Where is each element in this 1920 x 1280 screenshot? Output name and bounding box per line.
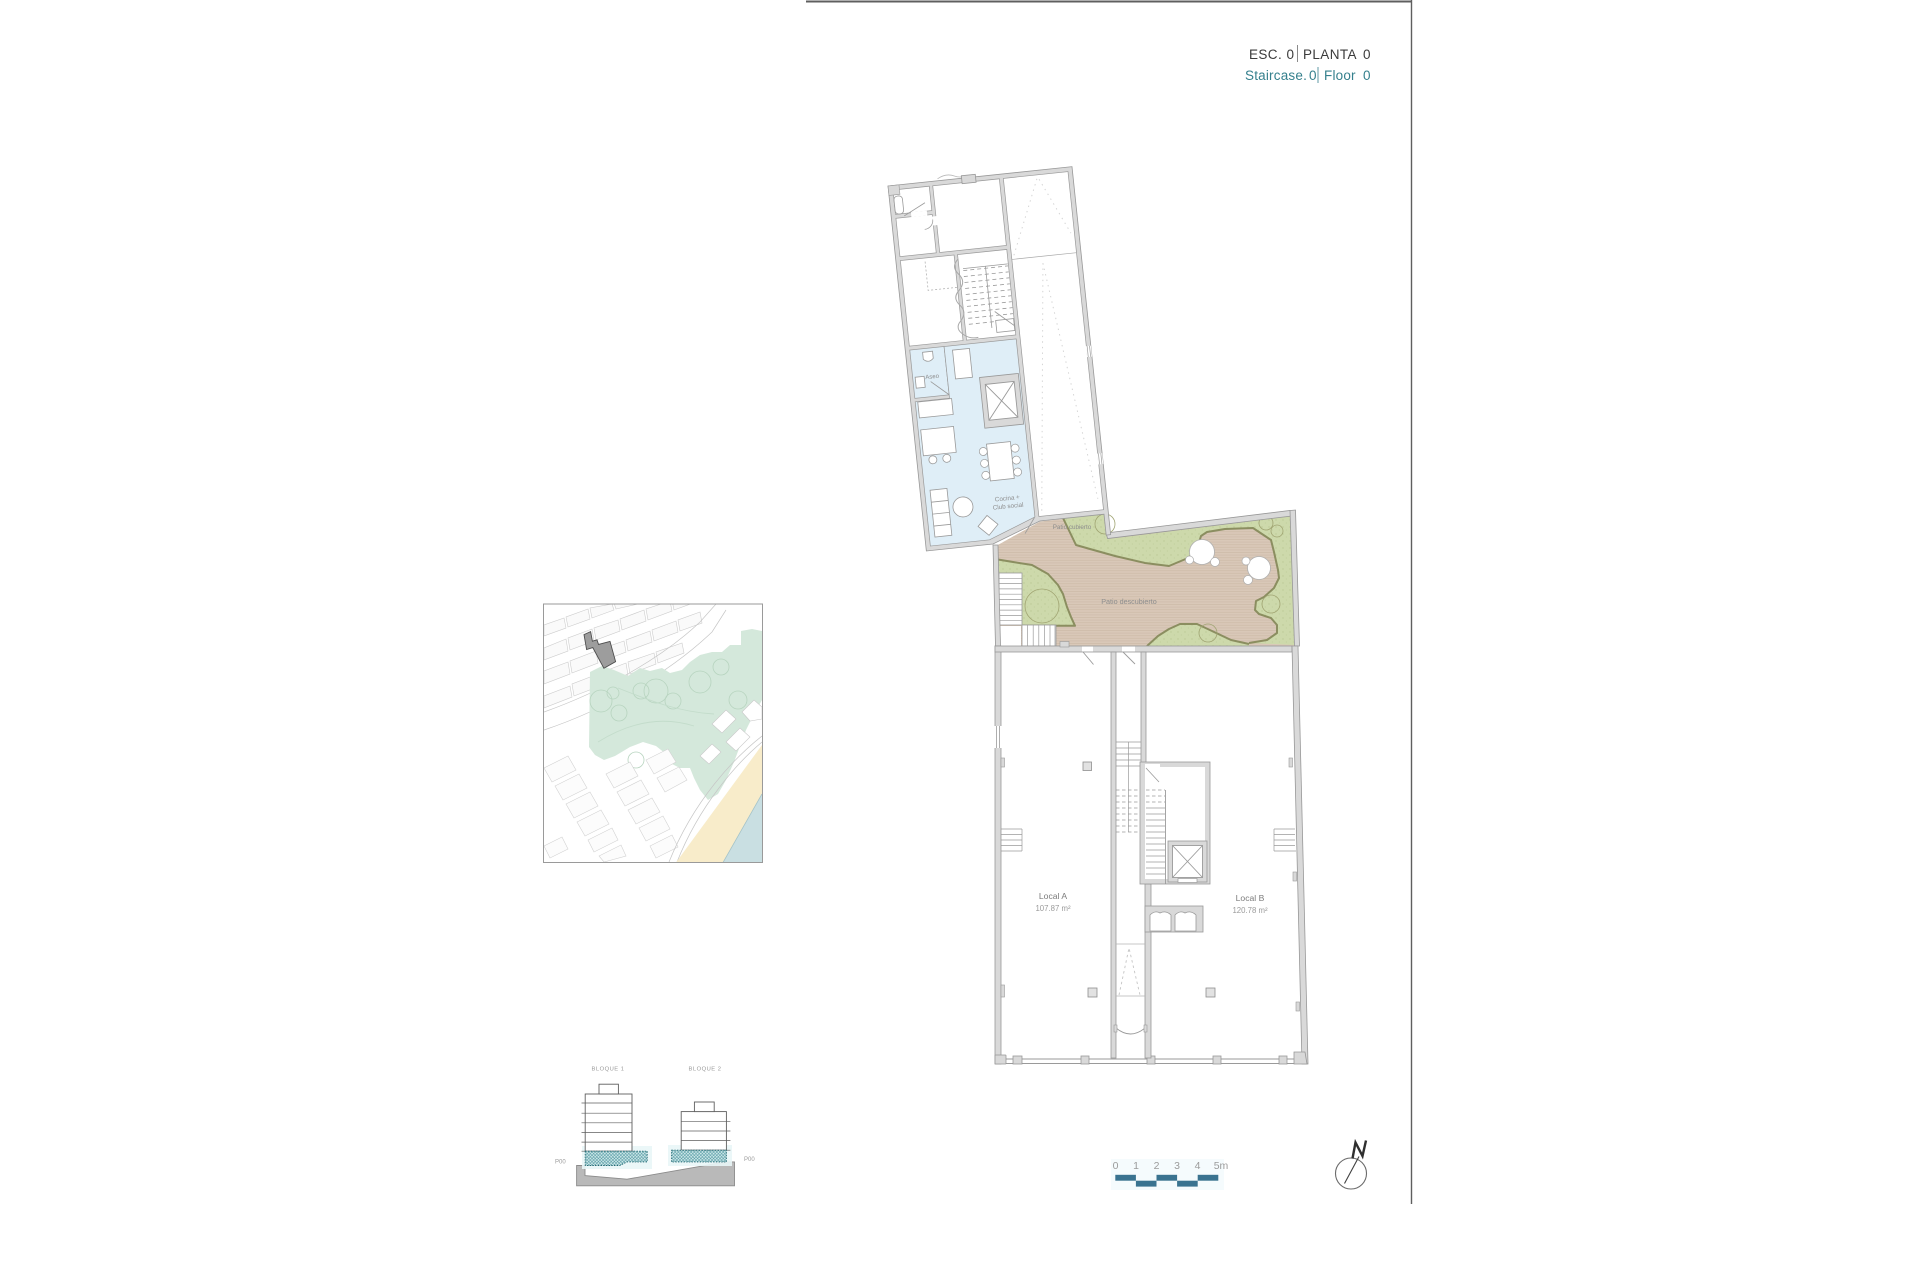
svg-text:0: 0 xyxy=(1363,68,1371,83)
svg-text:Floor: Floor xyxy=(1324,68,1356,83)
svg-text:1: 1 xyxy=(1133,1160,1139,1172)
svg-text:BLOQUE 1: BLOQUE 1 xyxy=(592,1067,625,1073)
svg-text:4: 4 xyxy=(1195,1160,1201,1172)
svg-text:3: 3 xyxy=(1174,1160,1180,1172)
svg-text:ESC.: ESC. xyxy=(1249,47,1282,62)
svg-text:PLANTA: PLANTA xyxy=(1303,47,1357,62)
svg-text:P00: P00 xyxy=(744,1157,755,1163)
svg-text:P00: P00 xyxy=(555,1160,566,1166)
svg-text:Staircase.: Staircase. xyxy=(1245,68,1307,83)
svg-text:107.87 m²: 107.87 m² xyxy=(1035,904,1071,913)
svg-text:0: 0 xyxy=(1309,68,1317,83)
svg-text:BLOQUE 2: BLOQUE 2 xyxy=(689,1067,722,1073)
svg-text:0: 0 xyxy=(1363,47,1371,62)
svg-text:2: 2 xyxy=(1154,1160,1160,1172)
svg-text:0: 0 xyxy=(1287,47,1295,62)
svg-text:Local A: Local A xyxy=(1039,891,1067,901)
svg-text:120.78 m²: 120.78 m² xyxy=(1232,906,1268,915)
svg-text:0: 0 xyxy=(1113,1160,1119,1172)
svg-text:Patio descubierto: Patio descubierto xyxy=(1101,597,1157,606)
svg-text:5m: 5m xyxy=(1214,1160,1229,1172)
svg-text:Patio cubierto: Patio cubierto xyxy=(1053,524,1092,531)
svg-text:Local B: Local B xyxy=(1236,893,1265,903)
